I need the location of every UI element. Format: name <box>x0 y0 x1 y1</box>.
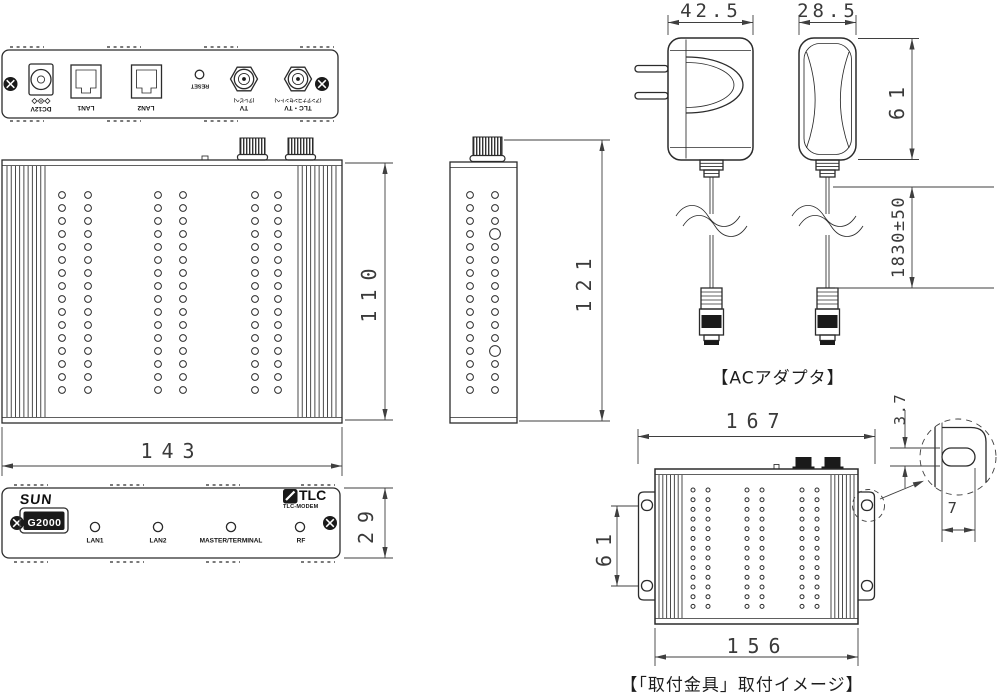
heatsink-fins <box>298 166 336 417</box>
master-terminal-led-label: MASTER/TERMINAL <box>200 538 263 545</box>
tlc-tv-connector-label: TLC・TV (アンテナコンセントへ) <box>275 97 322 111</box>
master-terminal-led <box>226 522 235 531</box>
reset-button <box>195 70 204 79</box>
heatsink-fins <box>831 475 854 618</box>
dim-28-5: 28.5 <box>797 0 859 22</box>
lan1-led <box>90 522 99 531</box>
tv-coax-connector <box>231 67 258 91</box>
sun-logo: SUN <box>19 491 53 507</box>
bracket-slot <box>642 500 653 511</box>
cord-bushing <box>700 160 723 177</box>
ac-adapter-caption: 【ACアダプタ】 <box>711 364 844 389</box>
mounting-bracket-right <box>858 492 875 600</box>
coax-connector-side <box>470 137 505 162</box>
device-body-top <box>2 160 342 423</box>
lan2-led-label: LAN2 <box>150 538 167 545</box>
dc-plug <box>700 288 724 345</box>
bracket-slot <box>862 581 873 592</box>
dim-121: 121 <box>572 249 596 312</box>
tlc-tv-label-note: (アンテナコンセントへ) <box>275 97 322 103</box>
bracket-slot <box>642 581 653 592</box>
reset-label: RESET <box>191 82 209 89</box>
dc-plug <box>816 288 840 345</box>
model-number: G2000 <box>27 517 61 529</box>
top-view-drawing <box>0 135 400 485</box>
rear-panel-drawing <box>0 28 352 130</box>
vent-holes <box>59 192 282 394</box>
dim-110: 110 <box>357 259 381 322</box>
vent-holes <box>467 192 499 394</box>
lan2-led <box>153 522 162 531</box>
rf-led <box>295 522 304 531</box>
mounting-caption: 【「取付金具」取付イメージ】 <box>620 671 863 696</box>
rf-led-label: RF <box>297 538 306 545</box>
dim-143: 143 <box>140 439 203 463</box>
plug-prong <box>635 66 668 73</box>
lan1-port-label: LAN1 <box>78 103 95 111</box>
power-cable <box>792 177 863 288</box>
slot-detail-view <box>890 410 996 542</box>
dc-power-jack <box>29 64 53 95</box>
mounting-bracket-drawing <box>590 390 1000 697</box>
tlc-modem-label: TLC-MODEM <box>283 504 318 510</box>
lan1-port <box>71 65 101 98</box>
polarity-symbol-icon <box>32 99 50 104</box>
tlc-tv-coax-connector <box>285 67 312 91</box>
cord-bushing <box>816 160 839 177</box>
screw-icon <box>315 77 329 91</box>
dim-1830: 1830±50 <box>889 196 909 278</box>
dim-156: 156 <box>726 634 789 658</box>
plug-prong <box>635 93 668 100</box>
ac-adapter-front-view <box>799 38 856 160</box>
tlc-logo-text: TLC <box>299 487 326 503</box>
bracket-slot <box>862 500 873 511</box>
lan2-port-label: LAN2 <box>138 103 155 111</box>
device-body-side <box>450 162 517 423</box>
screw-icon <box>4 77 18 91</box>
screw-icon <box>10 516 24 530</box>
technical-drawing-sheet: DC12V LAN1 LAN2 RESET TV (テレビへ) TLC・TV (… <box>0 0 1000 697</box>
lan2-port <box>132 65 162 98</box>
tlc-tv-label-text: TLC・TV <box>284 104 311 111</box>
heatsink-fins <box>659 475 682 618</box>
device-body-mounted <box>655 469 858 624</box>
dc12v-label: DC12V <box>31 104 52 112</box>
tv-label-text: TV <box>240 104 248 111</box>
coax-connector-top <box>238 138 268 160</box>
ac-adapter-drawing <box>620 0 1000 400</box>
dim-42-5: 42.5 <box>680 0 742 22</box>
dim-29: 29 <box>354 502 378 544</box>
dim-61-adapter: 61 <box>885 78 909 120</box>
dim-167: 167 <box>725 409 788 433</box>
lan1-led-label: LAN1 <box>87 538 104 545</box>
dim-61-mount: 61 <box>592 525 616 567</box>
bracket-slot-detail <box>942 448 975 466</box>
dim-3-7: 3.7 <box>891 393 909 426</box>
coax-connector-top <box>286 138 316 160</box>
power-cable <box>676 177 747 288</box>
mounting-bracket-left <box>639 492 656 600</box>
heatsink-fins <box>7 166 45 417</box>
dim-7: 7 <box>948 499 959 517</box>
ac-adapter-side-view <box>635 38 753 160</box>
tv-label-note: (テレビへ) <box>234 97 255 103</box>
screw-icon <box>323 516 337 530</box>
tv-connector-label: TV (テレビへ) <box>234 97 255 111</box>
